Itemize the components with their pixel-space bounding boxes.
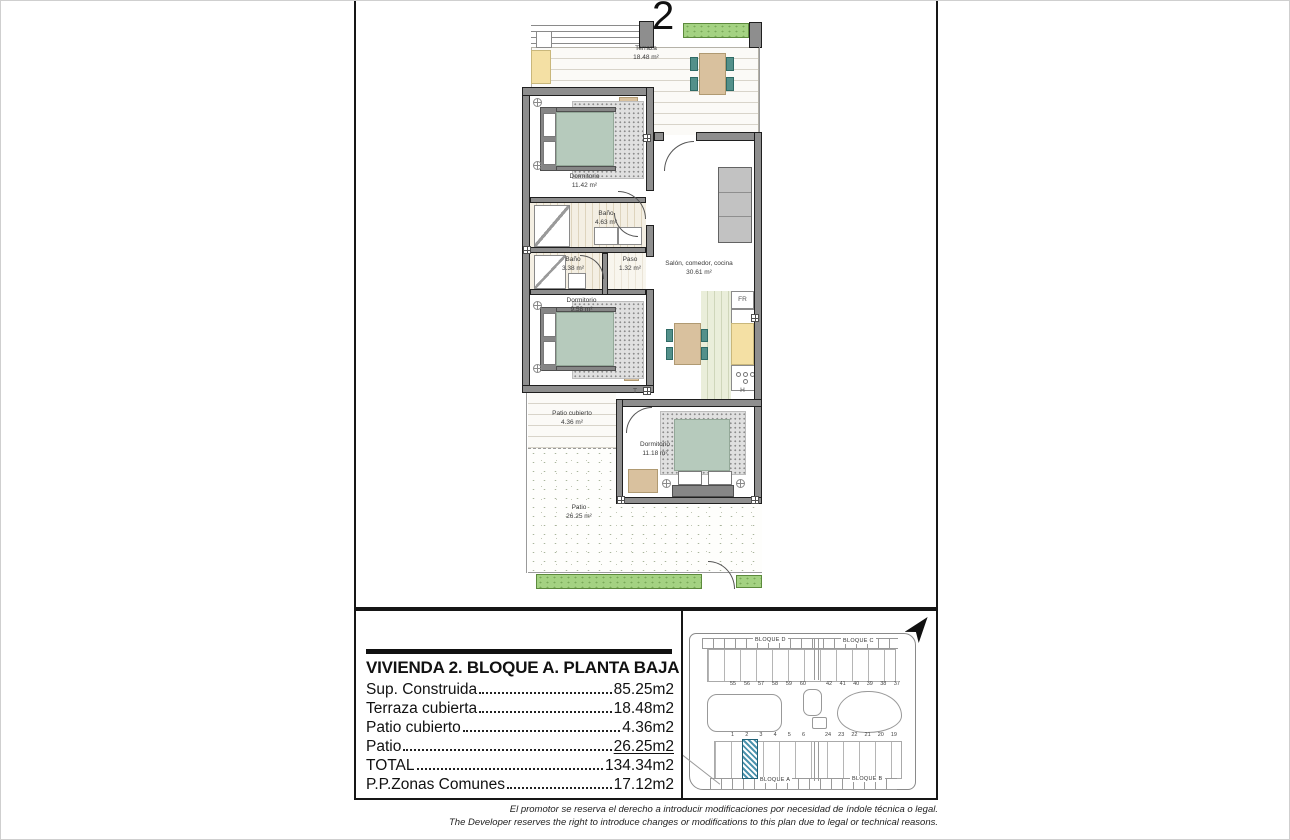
room-label-terraza: Terraza18.48 m² <box>611 45 681 63</box>
wall-light-icon <box>533 364 542 373</box>
kitchen-floor <box>701 291 731 399</box>
unit-number: 2 <box>745 732 748 738</box>
site-plan: BLOQUE D BLOQUE C 555657585960 424140393… <box>683 611 936 798</box>
wall-light-icon <box>533 161 542 170</box>
unit-number: 39 <box>867 681 873 687</box>
unit-number: 20 <box>878 732 884 738</box>
fridge-label: FR <box>731 296 754 303</box>
shower <box>534 205 570 247</box>
room-label-bano2: Baño3.38 m² <box>548 256 598 274</box>
plaza <box>803 689 822 716</box>
hob-label: H <box>731 387 754 394</box>
sofa <box>718 167 752 243</box>
wall <box>616 399 762 407</box>
unit-number: 38 <box>880 681 886 687</box>
wall-joint <box>643 387 651 395</box>
hedge <box>736 575 762 588</box>
unit-number: 1 <box>731 732 734 738</box>
table-rows: Sup. Construida85.25m2 Terraza cubierta1… <box>366 681 674 795</box>
disclaimer: El promotor se reserva el derecho a intr… <box>354 804 938 830</box>
door-arc <box>664 141 694 171</box>
terrace-cabinet <box>531 50 551 84</box>
walkway <box>814 638 815 680</box>
room-label-salon: Salón, comedor, cocina30.61 m² <box>654 260 744 278</box>
bedside-rug <box>628 469 658 493</box>
wall <box>616 497 762 504</box>
storage-box <box>536 31 552 48</box>
wall-joint <box>751 314 759 322</box>
plan-sheet: 2 FR H <box>0 0 1290 840</box>
table-row: Patio26.25m2 <box>366 738 674 757</box>
wall <box>696 132 762 141</box>
room-label-patio: Patio26.25 m² <box>546 504 612 522</box>
highlighted-unit <box>742 739 758 779</box>
room-label-bano1: Baño4.63 m² <box>581 210 631 228</box>
room-label-dormitorio3: Dormitorio11.18 m² <box>622 441 688 459</box>
unit-numbers-bottom: 123456 242322212019 <box>731 732 897 738</box>
table-title: VIVIENDA 2. BLOQUE A. PLANTA BAJA <box>366 658 679 678</box>
hedge <box>536 574 702 589</box>
property-line <box>526 393 527 573</box>
toilet-label: T <box>626 388 644 395</box>
unit-number: 59 <box>786 681 792 687</box>
wall-joint <box>751 496 759 504</box>
table-row: TOTAL134.34m2 <box>366 757 674 776</box>
info-panel: VIVIENDA 2. BLOQUE A. PLANTA BAJA Sup. C… <box>354 609 938 800</box>
unit-number: 23 <box>838 732 844 738</box>
block-c-label: BLOQUE C <box>841 638 876 644</box>
wall-joint <box>523 246 531 254</box>
summary-table: VIVIENDA 2. BLOQUE A. PLANTA BAJA Sup. C… <box>356 611 683 798</box>
unit-numbers-top: 555657585960 424140393837 <box>730 681 900 687</box>
wall-light-icon <box>533 301 542 310</box>
unit-number: 22 <box>851 732 857 738</box>
unit-number: 37 <box>894 681 900 687</box>
kitchen-counter <box>731 323 754 365</box>
unit-number: 24 <box>825 732 831 738</box>
wall-joint <box>617 496 625 504</box>
floorplan-panel: 2 FR H <box>354 1 938 609</box>
disclaimer-en: The Developer reserves the right to intr… <box>354 817 938 830</box>
room-label-dormitorio1: Dormitorio11.42 m² <box>552 173 617 191</box>
wall-light-icon <box>662 479 671 488</box>
room-label-patio-cubierto: Patio cubierto4.36 m² <box>537 410 607 428</box>
unit-number-label: 2 <box>652 0 674 39</box>
wall <box>530 289 646 295</box>
unit-number: 41 <box>840 681 846 687</box>
building-row <box>707 649 896 682</box>
unit-number: 56 <box>744 681 750 687</box>
block-d-label: BLOQUE D <box>753 637 788 643</box>
disclaimer-es: El promotor se reserva el derecho a intr… <box>354 804 938 817</box>
wc <box>594 227 618 245</box>
table-row: Terraza cubierta18.48m2 <box>366 700 674 719</box>
pool <box>707 694 782 732</box>
unit-number: 58 <box>772 681 778 687</box>
table-row: Patio cubierto4.36m2 <box>366 719 674 738</box>
unit-number: 4 <box>774 732 777 738</box>
unit-number: 57 <box>758 681 764 687</box>
walkway <box>818 638 819 680</box>
pool <box>837 691 902 733</box>
wall <box>654 132 664 141</box>
block-a-label: BLOQUE A <box>758 777 792 783</box>
title-rule <box>366 649 672 654</box>
wall <box>646 225 654 257</box>
block-b-label: BLOQUE B <box>850 776 885 782</box>
wall <box>522 87 530 393</box>
unit-number: 40 <box>853 681 859 687</box>
wall-joint <box>643 134 651 142</box>
unit-number: 5 <box>788 732 791 738</box>
unit-number: 3 <box>759 732 762 738</box>
wall <box>522 87 654 96</box>
wall <box>749 22 762 48</box>
unit-number: 19 <box>891 732 897 738</box>
wall-light-icon <box>533 98 542 107</box>
wall-light-icon <box>736 479 745 488</box>
unit-number: 42 <box>826 681 832 687</box>
wall <box>646 289 654 393</box>
hedge <box>683 23 749 38</box>
unit-number: 55 <box>730 681 736 687</box>
wall <box>530 247 646 253</box>
room-label-paso: Paso1.32 m² <box>606 256 654 274</box>
plaza <box>812 717 827 729</box>
terrace-edge <box>759 47 760 135</box>
room-label-dormitorio2: Dormitorio9.58 m² <box>549 297 614 315</box>
unit-number: 21 <box>865 732 871 738</box>
table-row: Sup. Construida85.25m2 <box>366 681 674 700</box>
table-row: P.P.Zonas Comunes17.12m2 <box>366 776 674 795</box>
